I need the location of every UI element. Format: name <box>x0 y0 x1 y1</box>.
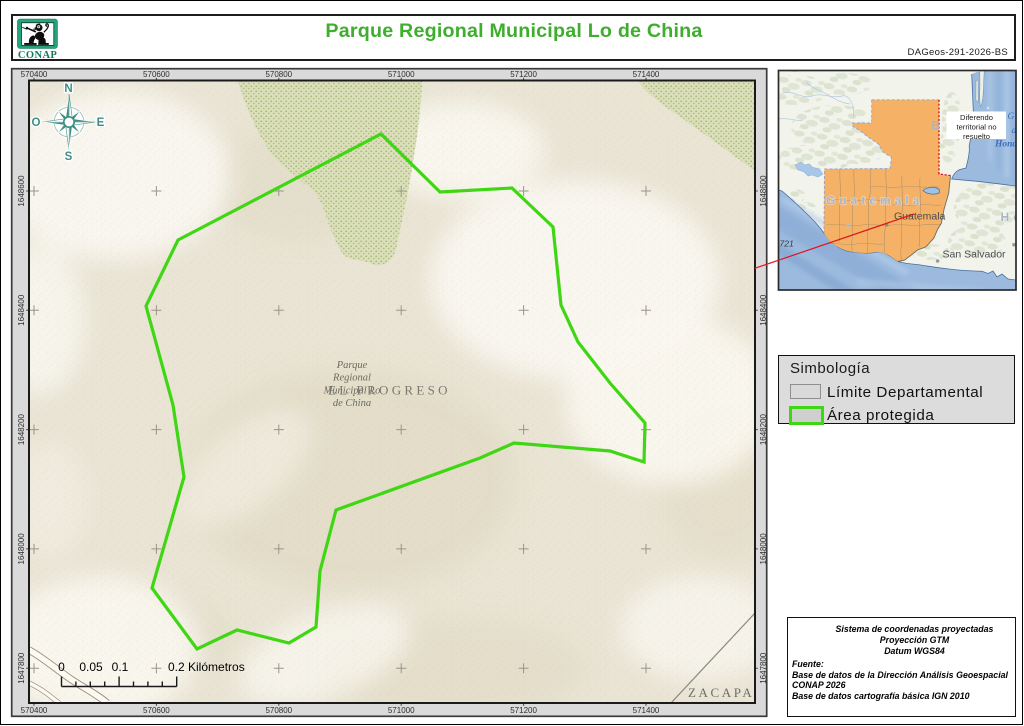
svg-text:Ho: Ho <box>1001 210 1024 224</box>
svg-text:Guatemala: Guatemala <box>826 194 923 208</box>
svg-text:Guatemala: Guatemala <box>894 211 946 223</box>
svg-text:resuelto: resuelto <box>963 132 990 141</box>
svg-text:Hond: Hond <box>994 140 1017 150</box>
svg-text:G: G <box>1008 112 1015 122</box>
svg-text:Diferendo: Diferendo <box>960 113 993 122</box>
svg-text:721: 721 <box>780 239 794 249</box>
svg-text:B: B <box>932 121 940 133</box>
svg-text:territorial no: territorial no <box>956 123 996 132</box>
svg-text:San Salvador: San Salvador <box>943 249 1007 261</box>
